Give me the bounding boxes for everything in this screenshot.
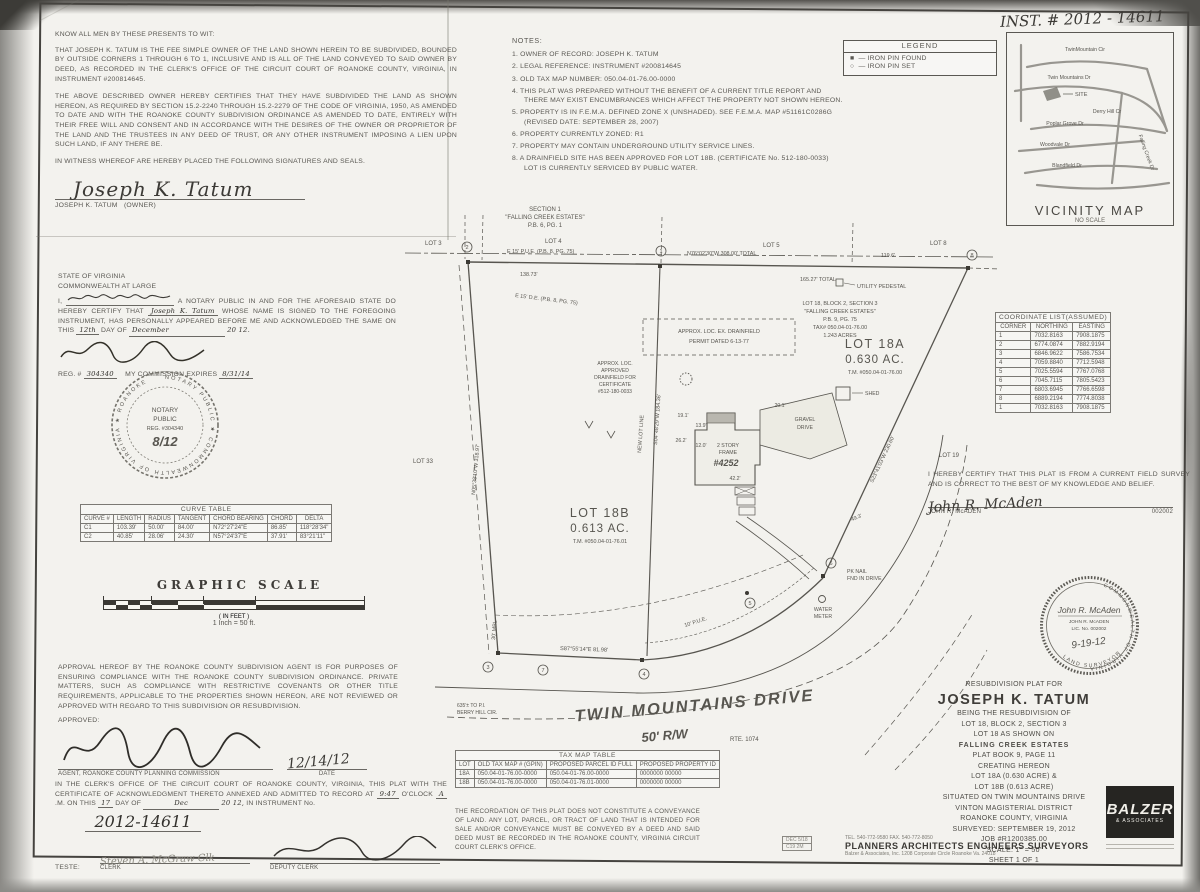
owner-paragraph-2: THE ABOVE DESCRIBED OWNER HEREBY CERTIFI… (55, 92, 457, 150)
graphic-scale-title: GRAPHIC SCALE (95, 578, 385, 592)
pk-nail-label-1: PK NAIL (847, 569, 867, 575)
vicinity-street-label: Derry Hill Cr (1093, 109, 1122, 115)
note-item: 1. OWNER OF RECORD: JOSEPH K. TATUM (512, 50, 844, 60)
notary-seal-line2: PUBLIC (153, 416, 177, 423)
east-boundary-bearing: S23°41'03"W 230.60' (869, 435, 896, 484)
vicinity-site-label: SITE (1075, 92, 1088, 98)
table-row: 47059.88407712.5948 (996, 359, 1111, 368)
title-line: SITUATED ON TWIN MOUNTAINS DRIVE (908, 793, 1120, 804)
title-line: BEING THE RESUBDIVISION OF (908, 709, 1120, 720)
section-label-3: P.B. 6, PG. 1 (528, 223, 563, 229)
parent-parcel-line4: TAX# 050.04-01-76.00 (813, 325, 867, 331)
title-line: LOT 18 AS SHOWN ON (908, 730, 1120, 741)
pk-nail-label-2: FND IN DRIVE (847, 576, 882, 582)
balzer-logo: BALZER & ASSOCIATES (1106, 786, 1174, 838)
table-row: 18A050.04-01-76.00-0000 050.04-01-76.00-… (456, 770, 720, 779)
balzer-logo-text: BALZER (1106, 801, 1174, 818)
record-time-fill: 9:47 (377, 790, 399, 799)
owner-paragraph-3: IN WITNESS WHEREOF ARE HEREBY PLACED THE… (55, 157, 457, 167)
title-line: PLAT BOOK 9, PAGE 11 (908, 751, 1120, 762)
owner-signature-role: (OWNER) (124, 202, 156, 209)
road-pi-distance-2: BERRY HILL CIR. (457, 710, 497, 716)
scan-shadow-bottom (0, 878, 1200, 892)
legend-box: LEGEND ■ — IRON PIN FOUND ○ — IRON PIN S… (843, 40, 997, 76)
note-item: 7. PROPERTY MAY CONTAIN UNDERGROUND UTIL… (512, 142, 844, 152)
house-label-2: FRAME (719, 450, 738, 456)
note-item: 6. PROPERTY CURRENTLY ZONED: R1 (512, 130, 844, 140)
house-label-1: 2 STORY (717, 443, 740, 449)
note-item: 8. A DRAINFIELD SITE HAS BEEN APPROVED F… (512, 154, 844, 173)
table-row: 17032.81637908.1875 (996, 332, 1111, 341)
title-line: RESUBDIVISION PLAT FOR (908, 680, 1120, 691)
m-on-label: .M. ON (55, 800, 78, 807)
dim-138: 138.73' (520, 272, 538, 278)
scale-ratio: 1 Inch = 50 ft. (95, 620, 373, 627)
svg-text:NOTARY PUBLIC ★ COMMONWEALTH O: NOTARY PUBLIC ★ COMMONWEALTH OF VIRGINIA… (114, 375, 216, 475)
iron-pin-set-icon: ○ (850, 63, 854, 70)
coord-header-northing: NORTHING (1031, 323, 1073, 332)
lot19-label: LOT 19 (939, 453, 960, 459)
subdivision-name: FALLING CREEK ESTATES (908, 741, 1120, 752)
title-line: ROANOKE COUNTY, VIRGINIA (908, 814, 1120, 825)
tax-map-table: TAX MAP TABLE LOTOLD TAX MAP # (GPIN) PR… (455, 750, 720, 788)
table-row: 86889.21947774.8038 (996, 395, 1111, 404)
drainage-easement-label: E 15' D.E. (P.B. 8, PG. 75) (515, 293, 578, 307)
owner-signature: Joseph K. Tatum (73, 177, 253, 201)
notary-seal-handwriting: 8/12 (152, 434, 178, 449)
dim-13-9: 13.9' (695, 423, 706, 429)
vicinity-street-label: TwinMountain Cir (1065, 47, 1105, 53)
notary-seal-line3: REG. #304340 (147, 426, 183, 432)
notary-day-of: DAY OF (101, 327, 127, 334)
curve-table-title: CURVE TABLE (81, 505, 332, 515)
firm-address: Balzer & Associates, Inc. 1208 Corporate… (845, 851, 1103, 857)
lot18b-taxmap: T.M. #050.04-01-76.01 (573, 539, 627, 545)
stamp-row-2: C19 2M (783, 844, 811, 850)
logo-stamp-lines (1106, 842, 1174, 852)
section-label-1: SECTION 1 (529, 207, 561, 213)
notes-title: NOTES: (512, 36, 844, 46)
new-lot-line-bearing: S04°48'29"W 184.36' (653, 394, 663, 445)
section-label-2: "FALLING CREEK ESTATES" (505, 215, 584, 221)
dim-119: 119.6' (881, 253, 895, 259)
coord-header-easting: EASTING (1073, 323, 1111, 332)
road-route-number: RTE. 1074 (730, 737, 759, 743)
lot8-label: LOT 8 (930, 241, 947, 247)
dim-19-1: 19.1' (677, 413, 688, 419)
notary-seal: NOTARY PUBLIC ★ COMMONWEALTH OF VIRGINIA… (100, 360, 230, 495)
owner-paragraph-1: THAT JOSEPH K. TATUM IS THE FEE SIMPLE O… (55, 46, 457, 85)
drainfield-cert-line3: DRAINFIELD FOR (594, 375, 636, 381)
pue-label: E 15' P.U.E. (P.B. 8, PG. 75) (507, 249, 575, 255)
corner-number: 7 (541, 668, 544, 674)
note-item: 3. OLD TAX MAP NUMBER: 050.04-01-76.00-0… (512, 75, 844, 85)
lot33-label: LOT 33 (413, 459, 434, 465)
drainfield-permit-line1: APPROX. LOC. EX. DRAINFIELD (678, 329, 760, 335)
utility-pedestal-label: UTILITY PEDESTAL (857, 284, 906, 290)
curve-table: CURVE TABLE CURVE #LENGTH RADIUSTANGENT … (80, 504, 332, 542)
corner-number: 2 (465, 245, 468, 251)
vicinity-street-label: Twin Mountains Dr (1048, 75, 1091, 81)
gravel-label-2: DRIVE (797, 425, 813, 431)
surveyor-license-number: 002002 (1152, 508, 1173, 517)
legend-found-label: — IRON PIN FOUND (859, 55, 927, 62)
dim-165: 165.27' TOTAL (800, 277, 836, 283)
corner-number: 5 (748, 601, 751, 607)
iron-pin-found-icon: ■ (850, 55, 854, 62)
vicinity-title: VICINITY MAP (1007, 203, 1173, 218)
vicinity-street-label: Blandfield Dr (1052, 163, 1082, 169)
table-row: 57025.55947767.0768 (996, 368, 1111, 377)
graphic-scale: GRAPHIC SCALE ( IN FEET ) 1 Inch = 50 ft… (95, 578, 385, 627)
legend-set-label: — IRON PIN SET (859, 63, 916, 70)
west-boundary-bearing: N05°38'10"W 318.97' (471, 444, 481, 495)
corner-number: 4 (642, 672, 645, 678)
pue-curve-label: 10' P.U.E. (684, 616, 708, 629)
coord-header-corner: CORNER (996, 323, 1031, 332)
title-line: LOT 18, BLOCK 2, SECTION 3 (908, 720, 1120, 731)
notary-commonwealth: COMMONWEALTH AT LARGE (58, 282, 396, 292)
note-item: 2. LEGAL REFERENCE: INSTRUMENT #20081464… (512, 62, 844, 72)
owner-heading: KNOW ALL MEN BY THESE PRESENTS TO WIT: (55, 30, 457, 40)
plat-owner-title: JOSEPH K. TATUM (908, 691, 1120, 710)
drainfield-permit-line2: PERMIT DATED 6-13-77 (689, 339, 749, 345)
lot3-label: LOT 3 (425, 241, 442, 247)
notary-owner-name-fill: Joseph K. Tatum (148, 307, 218, 316)
coordinate-table-title: COORDINATE LIST(ASSUMED) (996, 313, 1111, 323)
day-of-label: DAY OF (115, 800, 141, 807)
received-stamp: DEC 5/18 C19 2M (782, 836, 812, 851)
note-item: 4. THIS PLAT WAS PREPARED WITHOUT THE BE… (512, 87, 844, 106)
surveyor-seal-signature: John R. McAden (1057, 605, 1121, 615)
surveyor-seal: COMMONWEALTH OF VIRGINIA LAND SURVEYOR J… (1032, 568, 1147, 688)
drainfield-cert-line2: APPROVED (601, 368, 629, 374)
house-dim: 42.2' (729, 476, 740, 482)
vicinity-street-label: Woodvale Dr (1040, 142, 1070, 148)
vicinity-street-label: Falling Creek Dr (1137, 134, 1156, 172)
road-right-of-way: 50' R/W (641, 726, 690, 745)
notary-state: STATE OF VIRGINIA (58, 272, 396, 282)
svg-text:LAND SURVEYOR: LAND SURVEYOR (1061, 649, 1122, 669)
firm-disciplines: PLANNERS ARCHITECTS ENGINEERS SURVEYORS (845, 841, 1103, 851)
scan-shadow-left (0, 0, 34, 892)
surveyor-certification: I HEREBY CERTIFY THAT THIS PLAT IS FROM … (928, 470, 1190, 517)
am-pm-fill: A (436, 790, 447, 799)
approved-label: APPROVED: (58, 716, 398, 726)
surveyor-seal-date-handwritten: 9-19-12 (1071, 636, 1107, 652)
table-row: 26774.08747882.9194 (996, 341, 1111, 350)
vicinity-subtitle: NO SCALE (1007, 218, 1173, 224)
parent-parcel-line1: LOT 18, BLOCK 2, SECTION 3 (802, 301, 877, 307)
drainfield-cert-line1: APPROX. LOC. (597, 361, 632, 367)
corner-number: 3 (486, 665, 489, 671)
parent-parcel-line3: P.B. 9, PG. 75 (823, 317, 857, 323)
stamp-row-1: DEC 5/18 (783, 837, 811, 844)
road-pi-distance-1: 635'± TO P.I. (457, 703, 485, 709)
owner-certification-block: KNOW ALL MEN BY THESE PRESENTS TO WIT: T… (55, 30, 457, 210)
table-row: 17032.81637908.1875 (996, 404, 1111, 413)
table-row: 36846.96227586.7534 (996, 350, 1111, 359)
table-row: 67045.71157805.5423 (996, 377, 1111, 386)
table-row: C1103.39' 50.00'84.00' N72°27'24"E86.85'… (81, 524, 332, 533)
instrument-number-fill: 2012-14611 (85, 812, 201, 832)
legend-title: LEGEND (844, 41, 996, 53)
surveyor-cert-text: I HEREBY CERTIFY THAT THIS PLAT IS FROM … (928, 470, 1190, 489)
clerk-block: IN THE CLERK'S OFFICE OF THE CIRCUIT COU… (55, 780, 447, 872)
record-day-fill: 17 (98, 799, 113, 808)
owner-signature-name: JOSEPH K. TATUM (55, 202, 118, 209)
notary-day-fill: 12th (76, 326, 99, 335)
lot18b-title: LOT 18B (570, 506, 630, 520)
shed-label: SHED (865, 391, 880, 397)
gravel-label-1: GRAVEL (795, 417, 816, 423)
this-label: THIS (80, 800, 96, 807)
approval-block: APPROVAL HEREOF BY THE ROANOKE COUNTY SU… (58, 663, 398, 778)
notary-seal-ring-text: NOTARY PUBLIC ★ COMMONWEALTH OF VIRGINIA… (114, 375, 216, 475)
vicinity-map: TwinMountain Cir Twin Mountains Dr SITE … (1006, 32, 1174, 226)
surveyor-seal-name: JOHN R. McADEN (1069, 619, 1110, 625)
dim-12-0: 12.0' (695, 443, 706, 449)
corner-number: 1 (659, 249, 662, 255)
notary-seal-line1: NOTARY (152, 407, 179, 414)
road-frontage-bearing: S87°55'14"E 81.98' (560, 646, 608, 654)
in-instrument-label: IN INSTRUMENT No. (246, 800, 315, 807)
tax-table-title: TAX MAP TABLE (456, 751, 720, 761)
balzer-logo-subtext: & ASSOCIATES (1106, 818, 1174, 824)
corner-number: 8 (970, 253, 973, 259)
title-line: CREATING HEREON (908, 762, 1120, 773)
oclock-label: O'CLOCK (402, 791, 433, 798)
notary-month-fill: December (129, 326, 225, 337)
drainfield-cert-line4: CERTIFICATE (599, 382, 632, 388)
lot18a-title: LOT 18A (845, 337, 905, 351)
title-line: SHEET 1 OF 1 (908, 856, 1120, 867)
lot4-label: LOT 4 (545, 239, 562, 245)
notary-name-scribble (66, 298, 174, 306)
table-row: 18B050.04-01-76.00-0000 050.04-01-76.01-… (456, 779, 720, 788)
house-number: #4252 (713, 458, 738, 468)
notary-lead: I, (58, 298, 62, 305)
lot18a-taxmap: T.M. #050.04-01-76.00 (848, 370, 902, 376)
note-item: 5. PROPERTY IS IN F.E.M.A. DEFINED ZONE … (512, 108, 844, 127)
dim-20-1: 20.1' (774, 403, 785, 409)
lot18b-area: 0.613 AC. (570, 523, 630, 535)
surveyor-seal-ring-bottom: LAND SURVEYOR (1061, 649, 1122, 669)
north-boundary-bearing: N76°02'30"W 308.00' TOTAL (687, 251, 756, 257)
notary-reg-label: REG. # (58, 371, 82, 378)
lot5-label: LOT 5 (763, 243, 780, 249)
recordation-note: THE RECORDATION OF THIS PLAT DOES NOT CO… (455, 808, 700, 853)
title-line: LOT 18B (0.613 ACRE) (908, 783, 1120, 794)
title-line: VINTON MAGISTERIAL DISTRICT (908, 804, 1120, 815)
corner-number: 6 (829, 561, 832, 567)
table-row: C240.85' 28.06'24.30' N57°24'37"E37.91' … (81, 533, 332, 542)
dim-26-2: 26.2' (675, 438, 686, 444)
drainfield-cert-line5: #512-180-0033 (598, 389, 632, 395)
mbl-label: 30' MBL (491, 620, 499, 640)
teste-label: TESTE: (55, 863, 80, 873)
water-meter-label-2: METER (814, 614, 832, 620)
coordinate-table: COORDINATE LIST(ASSUMED) CORNER NORTHING… (995, 312, 1111, 413)
vicinity-street-label: Poplar Grove Dr (1046, 121, 1084, 127)
firm-footer: TEL. 540-772-9580 FAX. 540-772-8050 PLAN… (845, 835, 1103, 857)
record-year: 20 12, (221, 799, 244, 807)
lot18a-area: 0.630 AC. (845, 354, 905, 366)
water-meter-label-1: WATER (814, 607, 832, 613)
record-month-fill: Dec (143, 799, 219, 810)
fold-crease (36, 236, 456, 237)
title-line: SURVEYED: SEPTEMBER 19, 2012 (908, 825, 1120, 836)
parent-parcel-line2: "FALLING CREEK ESTATES" (804, 309, 875, 315)
new-lot-line-label: NEW LOT LINE (637, 414, 646, 453)
notes-block: NOTES: 1. OWNER OF RECORD: JOSEPH K. TAT… (512, 36, 844, 176)
notary-year: 20 12. (227, 326, 250, 334)
approval-text: APPROVAL HEREOF BY THE ROANOKE COUNTY SU… (58, 663, 398, 711)
scanned-plat-page: INST. # 2012 - 14611 KNOW ALL MEN BY THE… (0, 0, 1200, 892)
table-row: 76803.69457766.6598 (996, 386, 1111, 395)
title-line: LOT 18A (0.630 ACRE) & (908, 772, 1120, 783)
surveyor-seal-license: LIC. No. 002002 (1072, 626, 1107, 632)
